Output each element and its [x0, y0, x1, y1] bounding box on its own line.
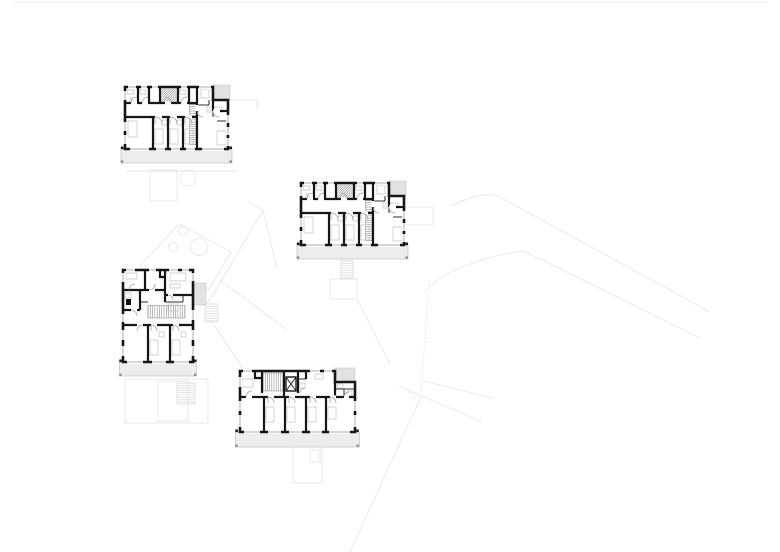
balcony-post	[297, 243, 300, 246]
balcony-post	[235, 430, 238, 433]
balcony-strip	[297, 245, 408, 259]
balcony-post	[406, 256, 408, 258]
balcony-post	[235, 445, 237, 447]
balcony-post	[356, 430, 359, 433]
balcony-post	[121, 147, 124, 150]
balcony-post	[194, 360, 197, 363]
building-2-floor-plan	[297, 181, 408, 259]
balcony-strip	[121, 149, 232, 163]
building-1-floor-plan	[121, 85, 232, 163]
balcony-post	[405, 243, 408, 246]
balcony-post	[230, 160, 232, 162]
building-4-floor-plan	[235, 368, 359, 447]
balcony-post	[297, 256, 299, 258]
roof-terrace-patch	[389, 181, 406, 196]
drawing-canvas	[0, 0, 780, 552]
balcony-post	[119, 374, 121, 376]
balcony-post	[229, 147, 232, 150]
roof-terrace-patch	[213, 85, 230, 100]
paper-background	[0, 0, 780, 552]
roof-terrace-patch	[193, 283, 206, 305]
balcony-post	[356, 445, 358, 447]
balcony-post	[194, 374, 196, 376]
balcony-post	[119, 360, 122, 363]
architectural-site-plan	[0, 0, 780, 552]
building-3-floor-plan	[119, 270, 206, 376]
balcony-strip	[120, 362, 197, 376]
balcony-post	[121, 160, 123, 162]
roof-terrace-patch	[335, 368, 355, 382]
balcony-strip	[236, 432, 360, 447]
